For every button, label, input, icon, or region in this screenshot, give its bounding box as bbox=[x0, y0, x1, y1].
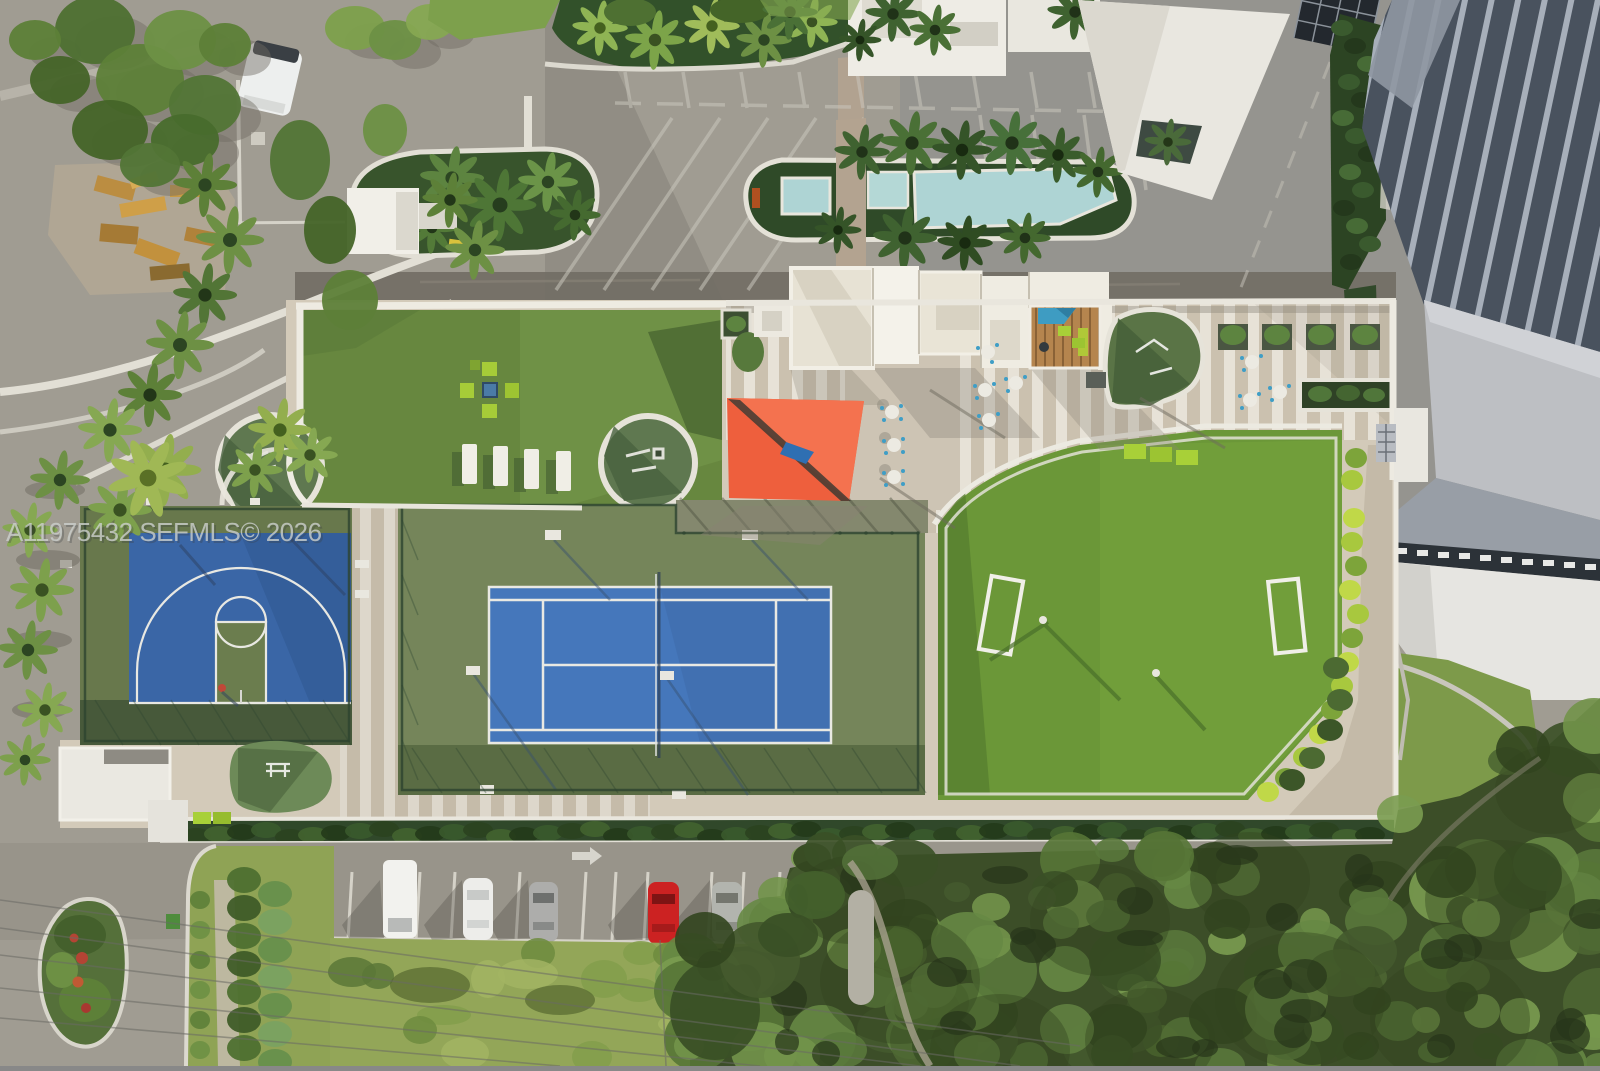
svg-text:A11975432 SEFMLS© 2026: A11975432 SEFMLS© 2026 bbox=[6, 517, 322, 547]
